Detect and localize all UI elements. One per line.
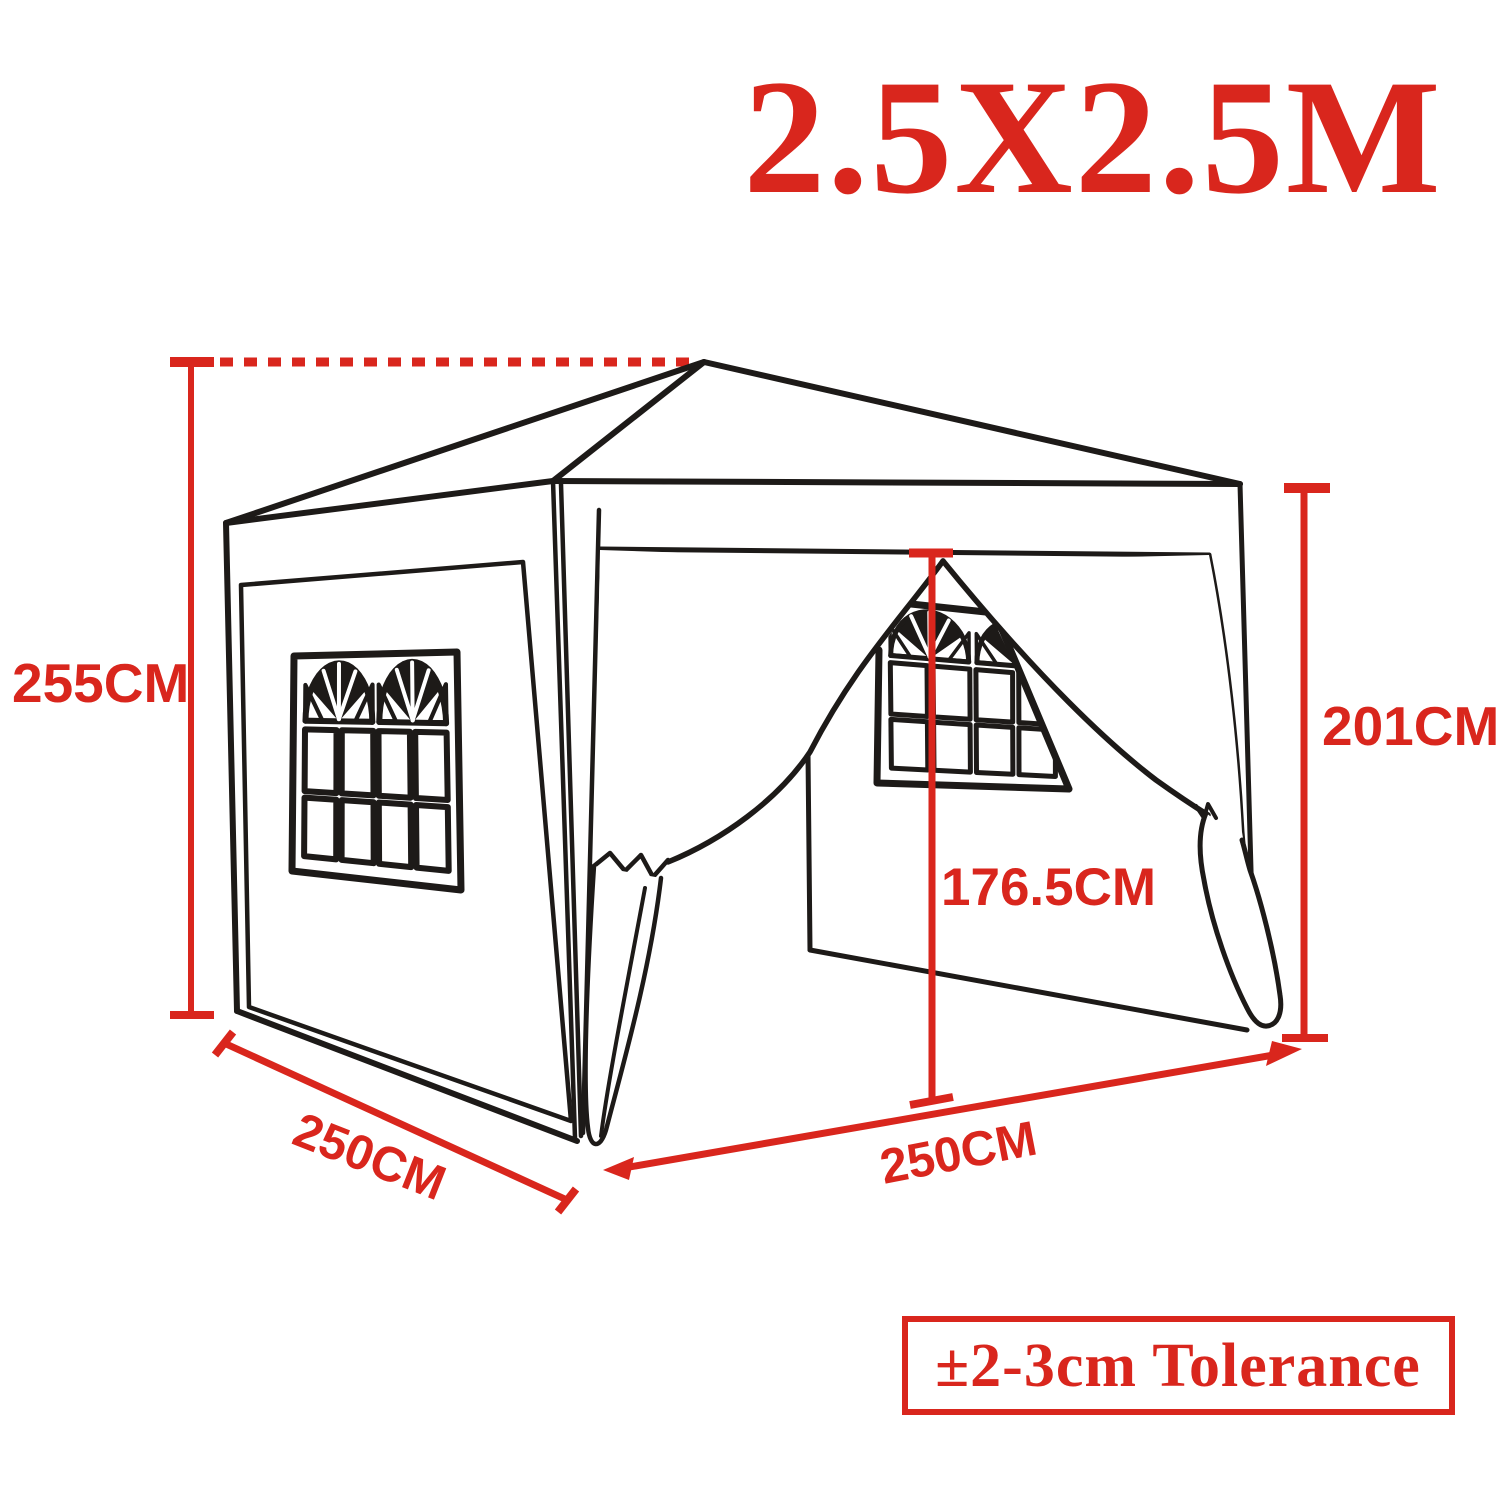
svg-text:176.5CM: 176.5CM — [941, 858, 1156, 917]
svg-text:250CM: 250CM — [876, 1112, 1041, 1195]
svg-text:250CM: 250CM — [286, 1103, 453, 1211]
svg-text:201CM: 201CM — [1322, 695, 1499, 757]
svg-text:±2-3cm Tolerance: ±2-3cm Tolerance — [935, 1332, 1421, 1400]
svg-text:255CM: 255CM — [12, 652, 189, 714]
svg-text:2.5X2.5M: 2.5X2.5M — [743, 47, 1442, 228]
